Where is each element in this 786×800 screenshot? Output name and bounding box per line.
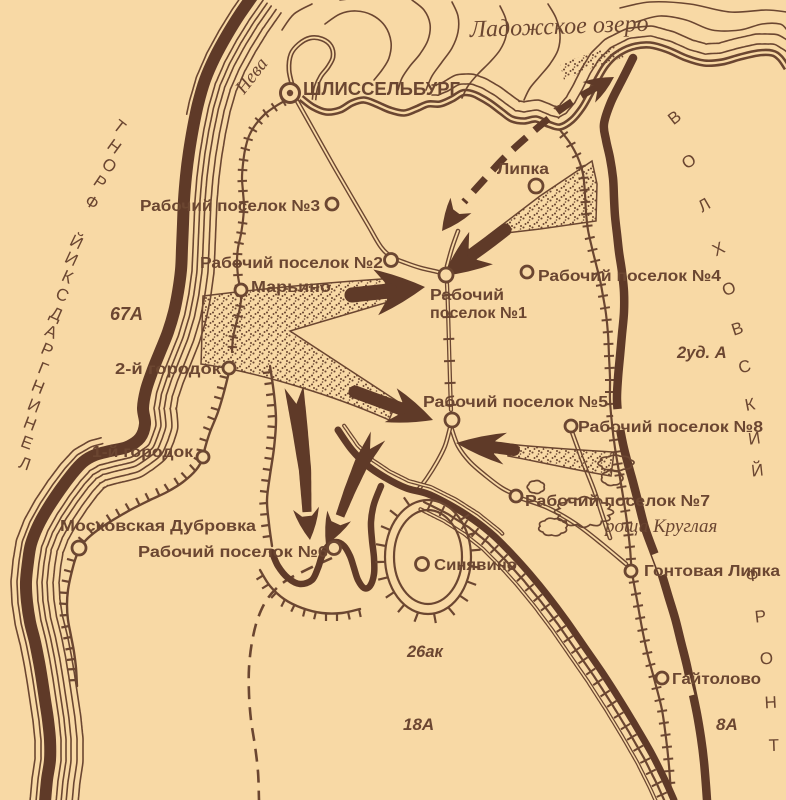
svg-text:Р: Р (754, 606, 767, 626)
svg-text:роща Круглая: роща Круглая (603, 516, 717, 537)
svg-text:Рабочий поселок №6: Рабочий поселок №6 (138, 544, 328, 561)
svg-text:Т: Т (768, 736, 779, 755)
svg-text:Рабочий поселок №7: Рабочий поселок №7 (525, 493, 710, 510)
svg-text:Рабочий поселок №3: Рабочий поселок №3 (140, 198, 320, 215)
svg-text:Рабочий поселок №2: Рабочий поселок №2 (200, 255, 383, 272)
svg-text:О: О (759, 648, 774, 668)
svg-text:67А: 67А (110, 304, 143, 324)
svg-text:Рабочий поселок №4: Рабочий поселок №4 (538, 268, 721, 285)
svg-text:18А: 18А (403, 715, 434, 734)
svg-text:Гайтолово: Гайтолово (672, 671, 761, 688)
svg-text:ШЛИССЕЛЬБУРГ: ШЛИССЕЛЬБУРГ (303, 78, 460, 99)
svg-text:поселок №1: поселок №1 (430, 305, 527, 322)
svg-text:Марьино: Марьино (251, 279, 331, 296)
svg-text:Липка: Липка (497, 161, 549, 178)
svg-text:2уд. А: 2уд. А (676, 344, 727, 362)
svg-text:Ф: Ф (745, 565, 760, 586)
svg-text:2-й городок: 2-й городок (115, 361, 222, 378)
svg-text:Синявино: Синявино (434, 557, 517, 574)
svg-text:26ак: 26ак (406, 643, 445, 661)
svg-text:Н: Н (764, 693, 777, 713)
svg-text:Рабочий: Рабочий (430, 287, 504, 304)
svg-text:8А: 8А (716, 715, 738, 734)
svg-text:Рабочий поселок №8: Рабочий поселок №8 (578, 419, 763, 436)
svg-text:Й: Й (750, 460, 764, 480)
svg-text:1-й городок: 1-й городок (92, 444, 194, 461)
svg-text:Гонтовая Липка: Гонтовая Липка (644, 563, 780, 580)
svg-text:Рабочий поселок №5: Рабочий поселок №5 (423, 394, 608, 411)
svg-text:Московская Дубровка: Московская Дубровка (60, 518, 256, 535)
